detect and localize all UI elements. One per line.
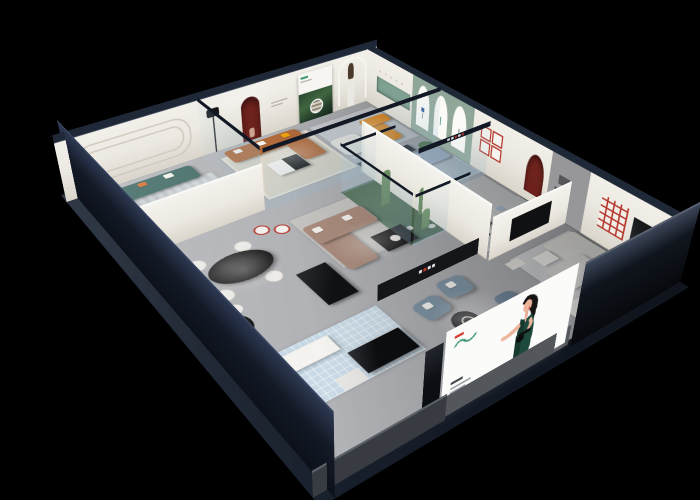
red-lattice-window — [597, 194, 630, 241]
niche-figurine — [249, 127, 255, 138]
bronze-statue — [348, 62, 354, 79]
billboard-logo-script — [454, 329, 478, 350]
poster-badge — [310, 97, 323, 115]
isometric-scene — [0, 0, 700, 500]
sign-glyph — [458, 134, 461, 137]
sign-glyph-red — [462, 133, 464, 136]
sign-glyph — [447, 138, 450, 141]
sign-glyph — [419, 270, 422, 274]
sign-glyph-red — [455, 135, 457, 138]
wall-dot — [380, 70, 381, 73]
sign-glyph-red — [423, 267, 426, 271]
building-floor-plate — [61, 94, 689, 500]
wall-dot — [396, 79, 397, 82]
sign-glyph — [432, 263, 435, 267]
wall-dot — [385, 73, 386, 76]
render-canvas — [0, 0, 700, 500]
sign-glyph — [451, 137, 454, 140]
wall-dot — [390, 76, 391, 79]
sign-glyph — [428, 265, 431, 269]
arch-text-line — [440, 117, 442, 126]
statue-pedestal — [347, 76, 354, 107]
red-arch-niche — [524, 151, 547, 200]
wall-dot — [401, 82, 402, 85]
